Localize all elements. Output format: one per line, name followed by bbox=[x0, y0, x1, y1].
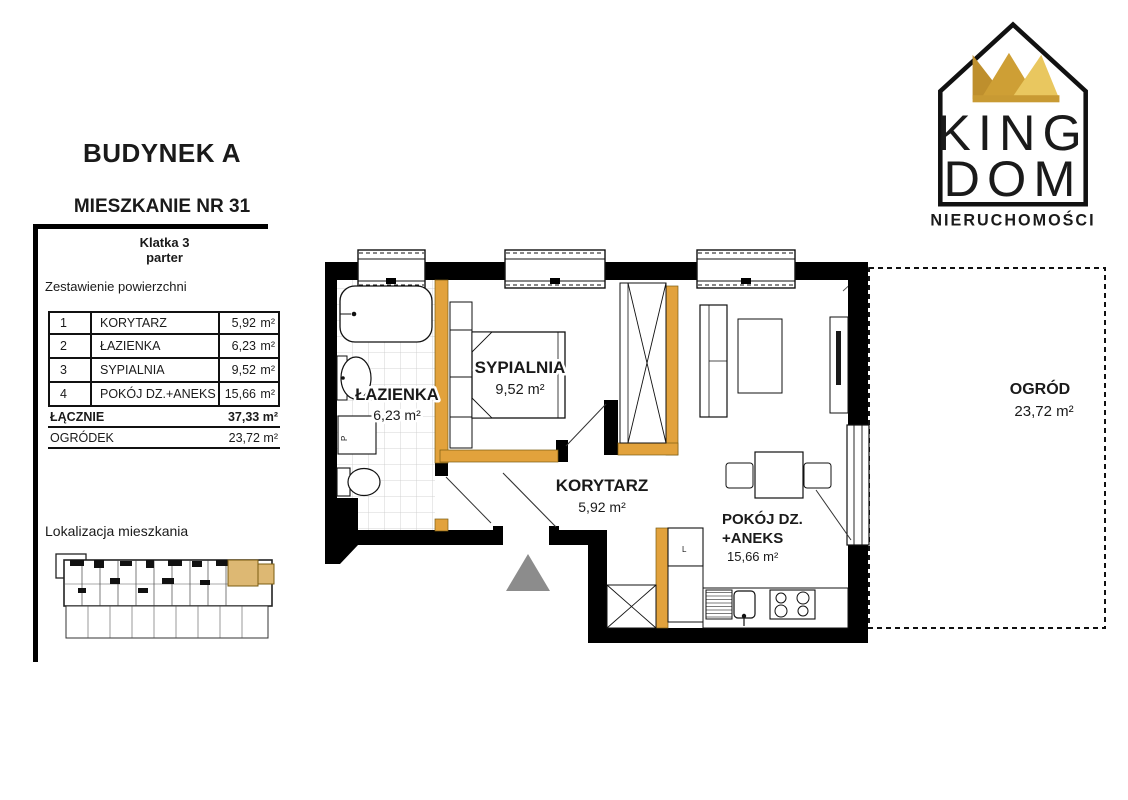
floor-label: parter bbox=[52, 250, 277, 265]
total-label: ŁĄCZNIE bbox=[50, 410, 104, 424]
entrance-arrow-icon bbox=[506, 554, 550, 591]
corridor-area: 5,92 m² bbox=[578, 499, 626, 515]
minimap-building-body bbox=[64, 560, 274, 638]
dining-table bbox=[726, 452, 831, 498]
row-unit: m² bbox=[256, 335, 278, 357]
apartment-title: MIESZKANIE NR 31 bbox=[52, 196, 272, 218]
tv-cabinet bbox=[830, 317, 848, 413]
row-number: 3 bbox=[50, 359, 92, 381]
fridge: L bbox=[668, 528, 703, 622]
kitchen-lower-cabinet bbox=[607, 585, 656, 628]
logo-subtitle: NIERUCHOMOŚCI bbox=[930, 210, 1095, 229]
row-value: 6,23 bbox=[220, 335, 256, 357]
washing-machine: P bbox=[338, 416, 376, 454]
table-row: 3 SYPIALNIA 9,52 m² bbox=[48, 359, 280, 383]
floor-plan: OGRÓD 23,72 m² bbox=[318, 246, 1113, 660]
row-unit: m² bbox=[256, 313, 278, 333]
total-row: ŁĄCZNIE 37,33 m² bbox=[48, 407, 280, 428]
frame-left-line bbox=[33, 224, 38, 662]
bedroom-area: 9,52 m² bbox=[495, 382, 544, 398]
row-value: 15,66 bbox=[220, 383, 256, 405]
total-value: 37,33 m² bbox=[228, 410, 278, 424]
table-row: 1 KORYTARZ 5,92 m² bbox=[48, 311, 280, 335]
coffee-table bbox=[738, 319, 782, 393]
corridor-name: KORYTARZ bbox=[556, 476, 649, 495]
garden-fence-border bbox=[869, 268, 1105, 628]
row-number: 1 bbox=[50, 313, 92, 333]
minimap-highlighted-unit bbox=[228, 560, 274, 586]
table-row: 2 ŁAZIENKA 6,23 m² bbox=[48, 335, 280, 359]
living-room-area: 15,66 m² bbox=[727, 549, 779, 564]
row-name: KORYTARZ bbox=[92, 313, 220, 333]
area-table: 1 KORYTARZ 5,92 m² 2 ŁAZIENKA 6,23 m² 3 … bbox=[48, 311, 280, 449]
wardrobe bbox=[620, 283, 666, 443]
garden-area-value: 23,72 m² bbox=[1014, 403, 1073, 420]
bathroom-door-swing bbox=[446, 477, 491, 523]
bedroom: SYPIALNIA 9,52 m² bbox=[450, 302, 606, 448]
window-living-room bbox=[697, 250, 795, 288]
row-unit: m² bbox=[256, 383, 278, 405]
location-minimap bbox=[50, 548, 285, 648]
row-name: ŁAZIENKA bbox=[92, 335, 220, 357]
fridge-label: L bbox=[682, 545, 687, 554]
table-row: 4 POKÓJ DZ.+ANEKS 15,66 m² bbox=[48, 383, 280, 407]
row-name: POKÓJ DZ.+ANEKS bbox=[92, 383, 220, 405]
washing-machine-label: P bbox=[340, 436, 349, 441]
bathroom-area: 6,23 m² bbox=[373, 407, 421, 423]
kingdom-logo: KING DOM NIERUCHOMOŚCI bbox=[910, 10, 1117, 235]
window-bedroom bbox=[505, 250, 605, 288]
garden-label: OGRÓDEK bbox=[50, 431, 114, 445]
row-number: 4 bbox=[50, 383, 92, 405]
bedroom-door-swing bbox=[566, 404, 606, 446]
living-room-name: POKÓJ DZ. bbox=[722, 510, 803, 528]
window-bathroom bbox=[358, 250, 425, 288]
frame-top-line bbox=[33, 224, 268, 229]
garden-area: OGRÓD 23,72 m² bbox=[843, 267, 1105, 628]
row-name: SYPIALNIA bbox=[92, 359, 220, 381]
entrance-door-swing bbox=[503, 473, 556, 527]
location-label: Lokalizacja mieszkania bbox=[45, 523, 188, 539]
bedroom-dresser bbox=[450, 302, 472, 448]
staircase-label: Klatka 3 bbox=[52, 235, 277, 250]
floorplan-page: BUDYNEK A MIESZKANIE NR 31 Klatka 3 part… bbox=[0, 0, 1128, 800]
area-table-title: Zestawienie powierzchni bbox=[45, 279, 187, 294]
stove bbox=[770, 590, 815, 619]
row-unit: m² bbox=[256, 359, 278, 381]
garden-value: 23,72 m² bbox=[229, 431, 278, 445]
logo-dom-text: DOM bbox=[944, 150, 1083, 207]
bathroom-name: ŁAZIENKA bbox=[355, 386, 438, 404]
bedroom-name: SYPIALNIA bbox=[475, 358, 566, 377]
row-value: 5,92 bbox=[220, 313, 256, 333]
toilet bbox=[337, 468, 380, 496]
staircase-floor-label: Klatka 3 parter bbox=[52, 235, 277, 265]
building-title: BUDYNEK A bbox=[52, 138, 272, 169]
garden-row: OGRÓDEK 23,72 m² bbox=[48, 428, 280, 449]
living-room-name2: +ANEKS bbox=[722, 530, 783, 547]
living-room: POKÓJ DZ. +ANEKS 15,66 m² bbox=[700, 305, 848, 564]
row-value: 9,52 bbox=[220, 359, 256, 381]
garden-name: OGRÓD bbox=[1010, 379, 1070, 398]
windows bbox=[358, 250, 795, 288]
sofa bbox=[700, 305, 727, 417]
row-number: 2 bbox=[50, 335, 92, 357]
minimap-garden-row bbox=[66, 606, 268, 638]
